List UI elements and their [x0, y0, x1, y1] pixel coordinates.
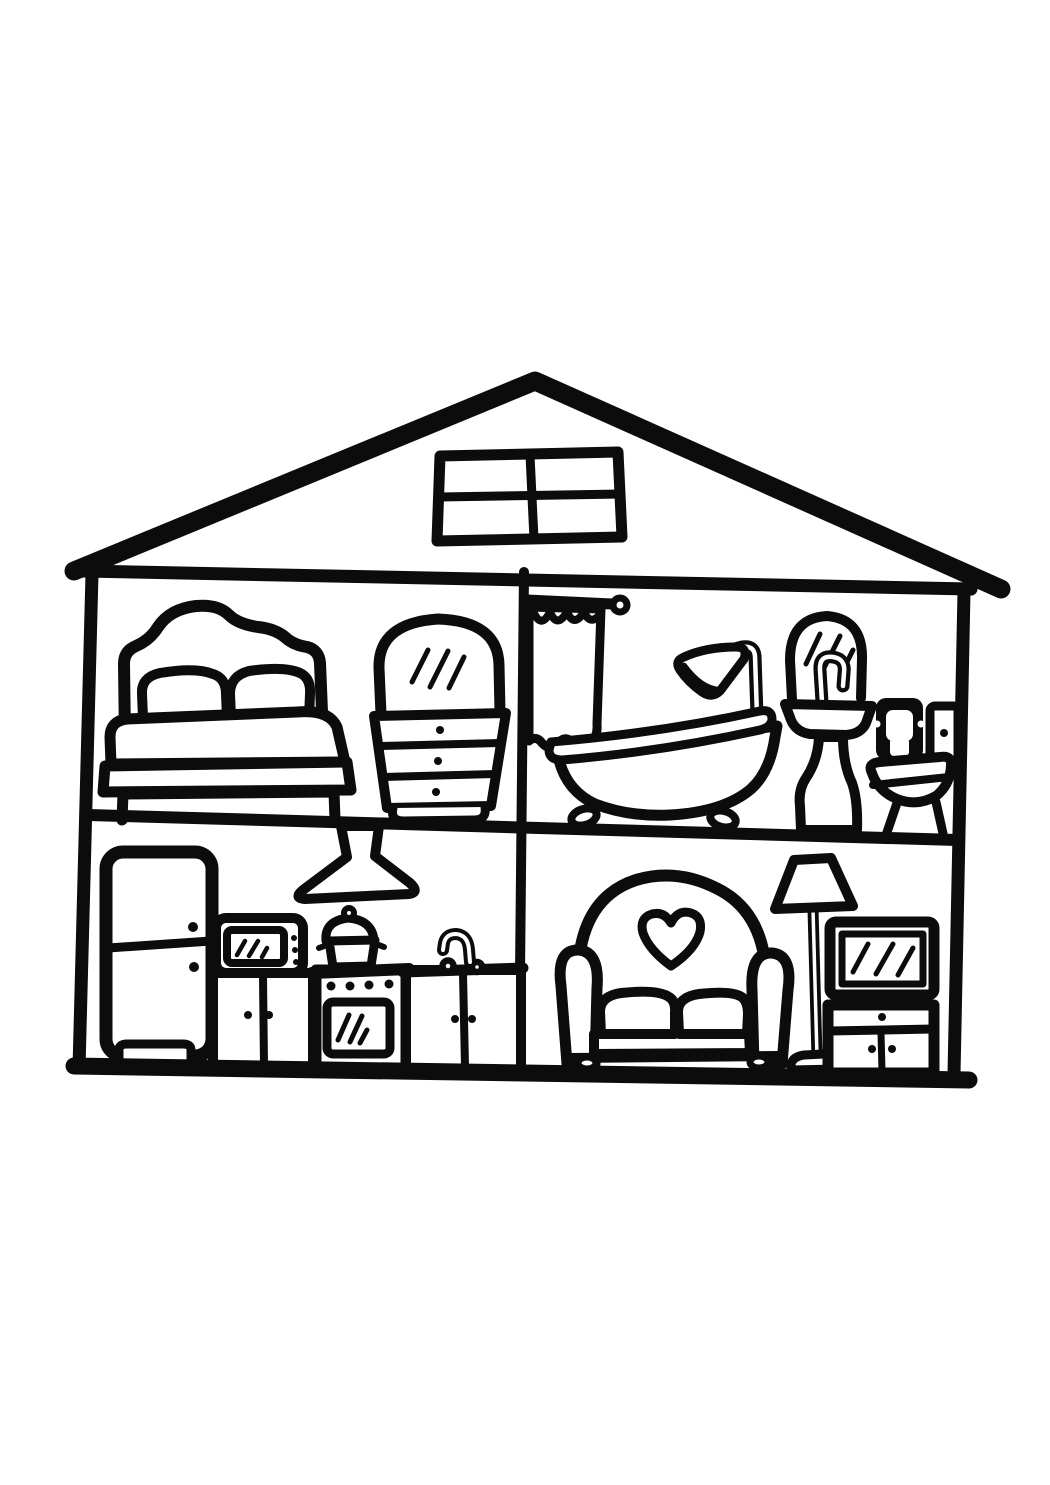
- pot-lid-knob: [344, 908, 354, 918]
- microwave-button-3: [293, 959, 299, 965]
- toilet-flush-button: [940, 729, 948, 737]
- shower-curtain-rod: [527, 600, 612, 604]
- tv-stand-knob-right: [888, 1045, 896, 1053]
- sofa-cushion-right: [678, 993, 748, 1034]
- microwave-counter: [213, 918, 313, 1067]
- toilet-paper-tail: [890, 738, 909, 756]
- bed-mattress: [110, 712, 345, 764]
- tv-stand-knob-left: [868, 1045, 876, 1053]
- sink-basin: [785, 704, 872, 735]
- stove-knob-2: [346, 982, 355, 991]
- sink-cabinet-door-divider: [463, 974, 465, 1066]
- pedestal-sink: [785, 616, 872, 830]
- toilet-paper-mount-left: [874, 721, 881, 728]
- toilet-paper-roll: [886, 710, 913, 741]
- stove-counter-edge: [312, 969, 409, 973]
- microwave-button-2: [292, 947, 298, 953]
- attic-window: [437, 452, 622, 541]
- tv-unit: [828, 922, 934, 1073]
- sink-cabinet-knob-left: [451, 1015, 459, 1023]
- stove-knob-4: [385, 980, 394, 989]
- dollhouse-illustration: [0, 0, 1050, 1485]
- refrigerator-body: [106, 852, 212, 1056]
- refrigerator-handle-bottom: [189, 962, 199, 972]
- sink-tap-left: [443, 961, 454, 972]
- sofa-bottom-rail: [570, 1056, 778, 1058]
- sofa-foot-right: [750, 1056, 768, 1068]
- stove-knob-3: [365, 981, 374, 990]
- counter-cabinet-door-divider: [263, 977, 264, 1065]
- shower-curtain-rod-knob: [613, 598, 627, 612]
- microwave-button-1: [291, 935, 297, 941]
- coloring-page: [0, 0, 1050, 1485]
- sink-cabinet-knob-right: [468, 1015, 476, 1023]
- sofa-back: [578, 876, 766, 1009]
- dresser-knob-top: [436, 726, 444, 734]
- shower-curtain-panel: [529, 607, 601, 748]
- dresser: [374, 619, 506, 821]
- dresser-knob-middle: [434, 757, 442, 765]
- pot-body: [329, 940, 375, 967]
- stove-knob-1: [327, 982, 336, 991]
- counter-cabinet-knob-right: [265, 1011, 273, 1019]
- toilet-paper-mount-right: [918, 721, 925, 728]
- sofa-arm-right: [752, 953, 789, 1064]
- refrigerator-handle-top: [188, 922, 198, 932]
- tv-stand-drawer-knob: [878, 1013, 886, 1021]
- dresser-knob-bottom: [432, 788, 440, 796]
- attic-window-mullion-horizontal: [439, 494, 621, 497]
- counter-cabinet-knob-left: [244, 1011, 252, 1019]
- toilet-paper-holder: [874, 698, 925, 760]
- sofa-cushion-left: [600, 992, 675, 1034]
- refrigerator: [106, 852, 212, 1066]
- tv-stand-door-divider: [881, 1033, 882, 1071]
